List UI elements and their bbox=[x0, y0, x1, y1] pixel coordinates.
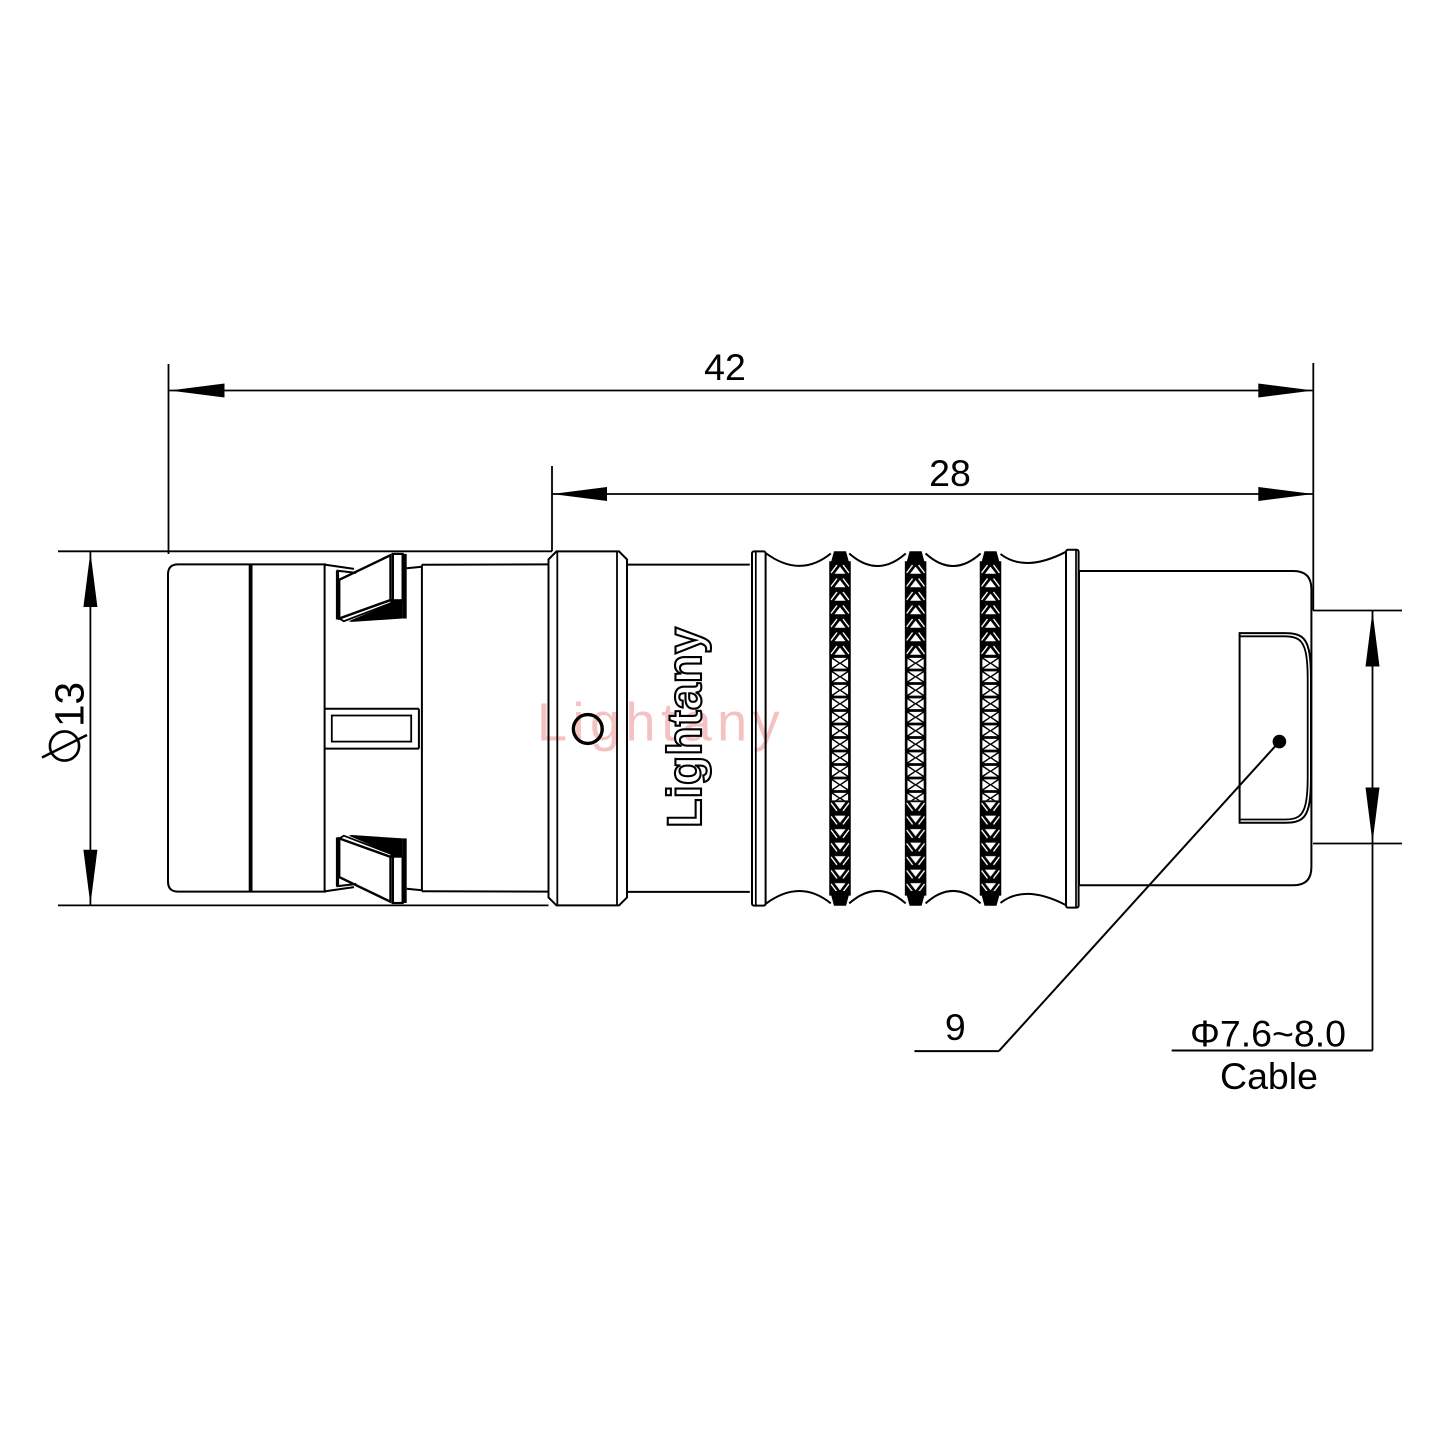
svg-text:Cable: Cable bbox=[1220, 1055, 1318, 1097]
svg-text:42: 42 bbox=[704, 346, 746, 388]
svg-text:28: 28 bbox=[929, 452, 971, 494]
svg-text:9: 9 bbox=[945, 1006, 966, 1048]
svg-text:Φ7.6~8.0: Φ7.6~8.0 bbox=[1190, 1012, 1346, 1054]
svg-text:Lightany: Lightany bbox=[659, 627, 712, 828]
svg-text:13: 13 bbox=[47, 682, 93, 727]
